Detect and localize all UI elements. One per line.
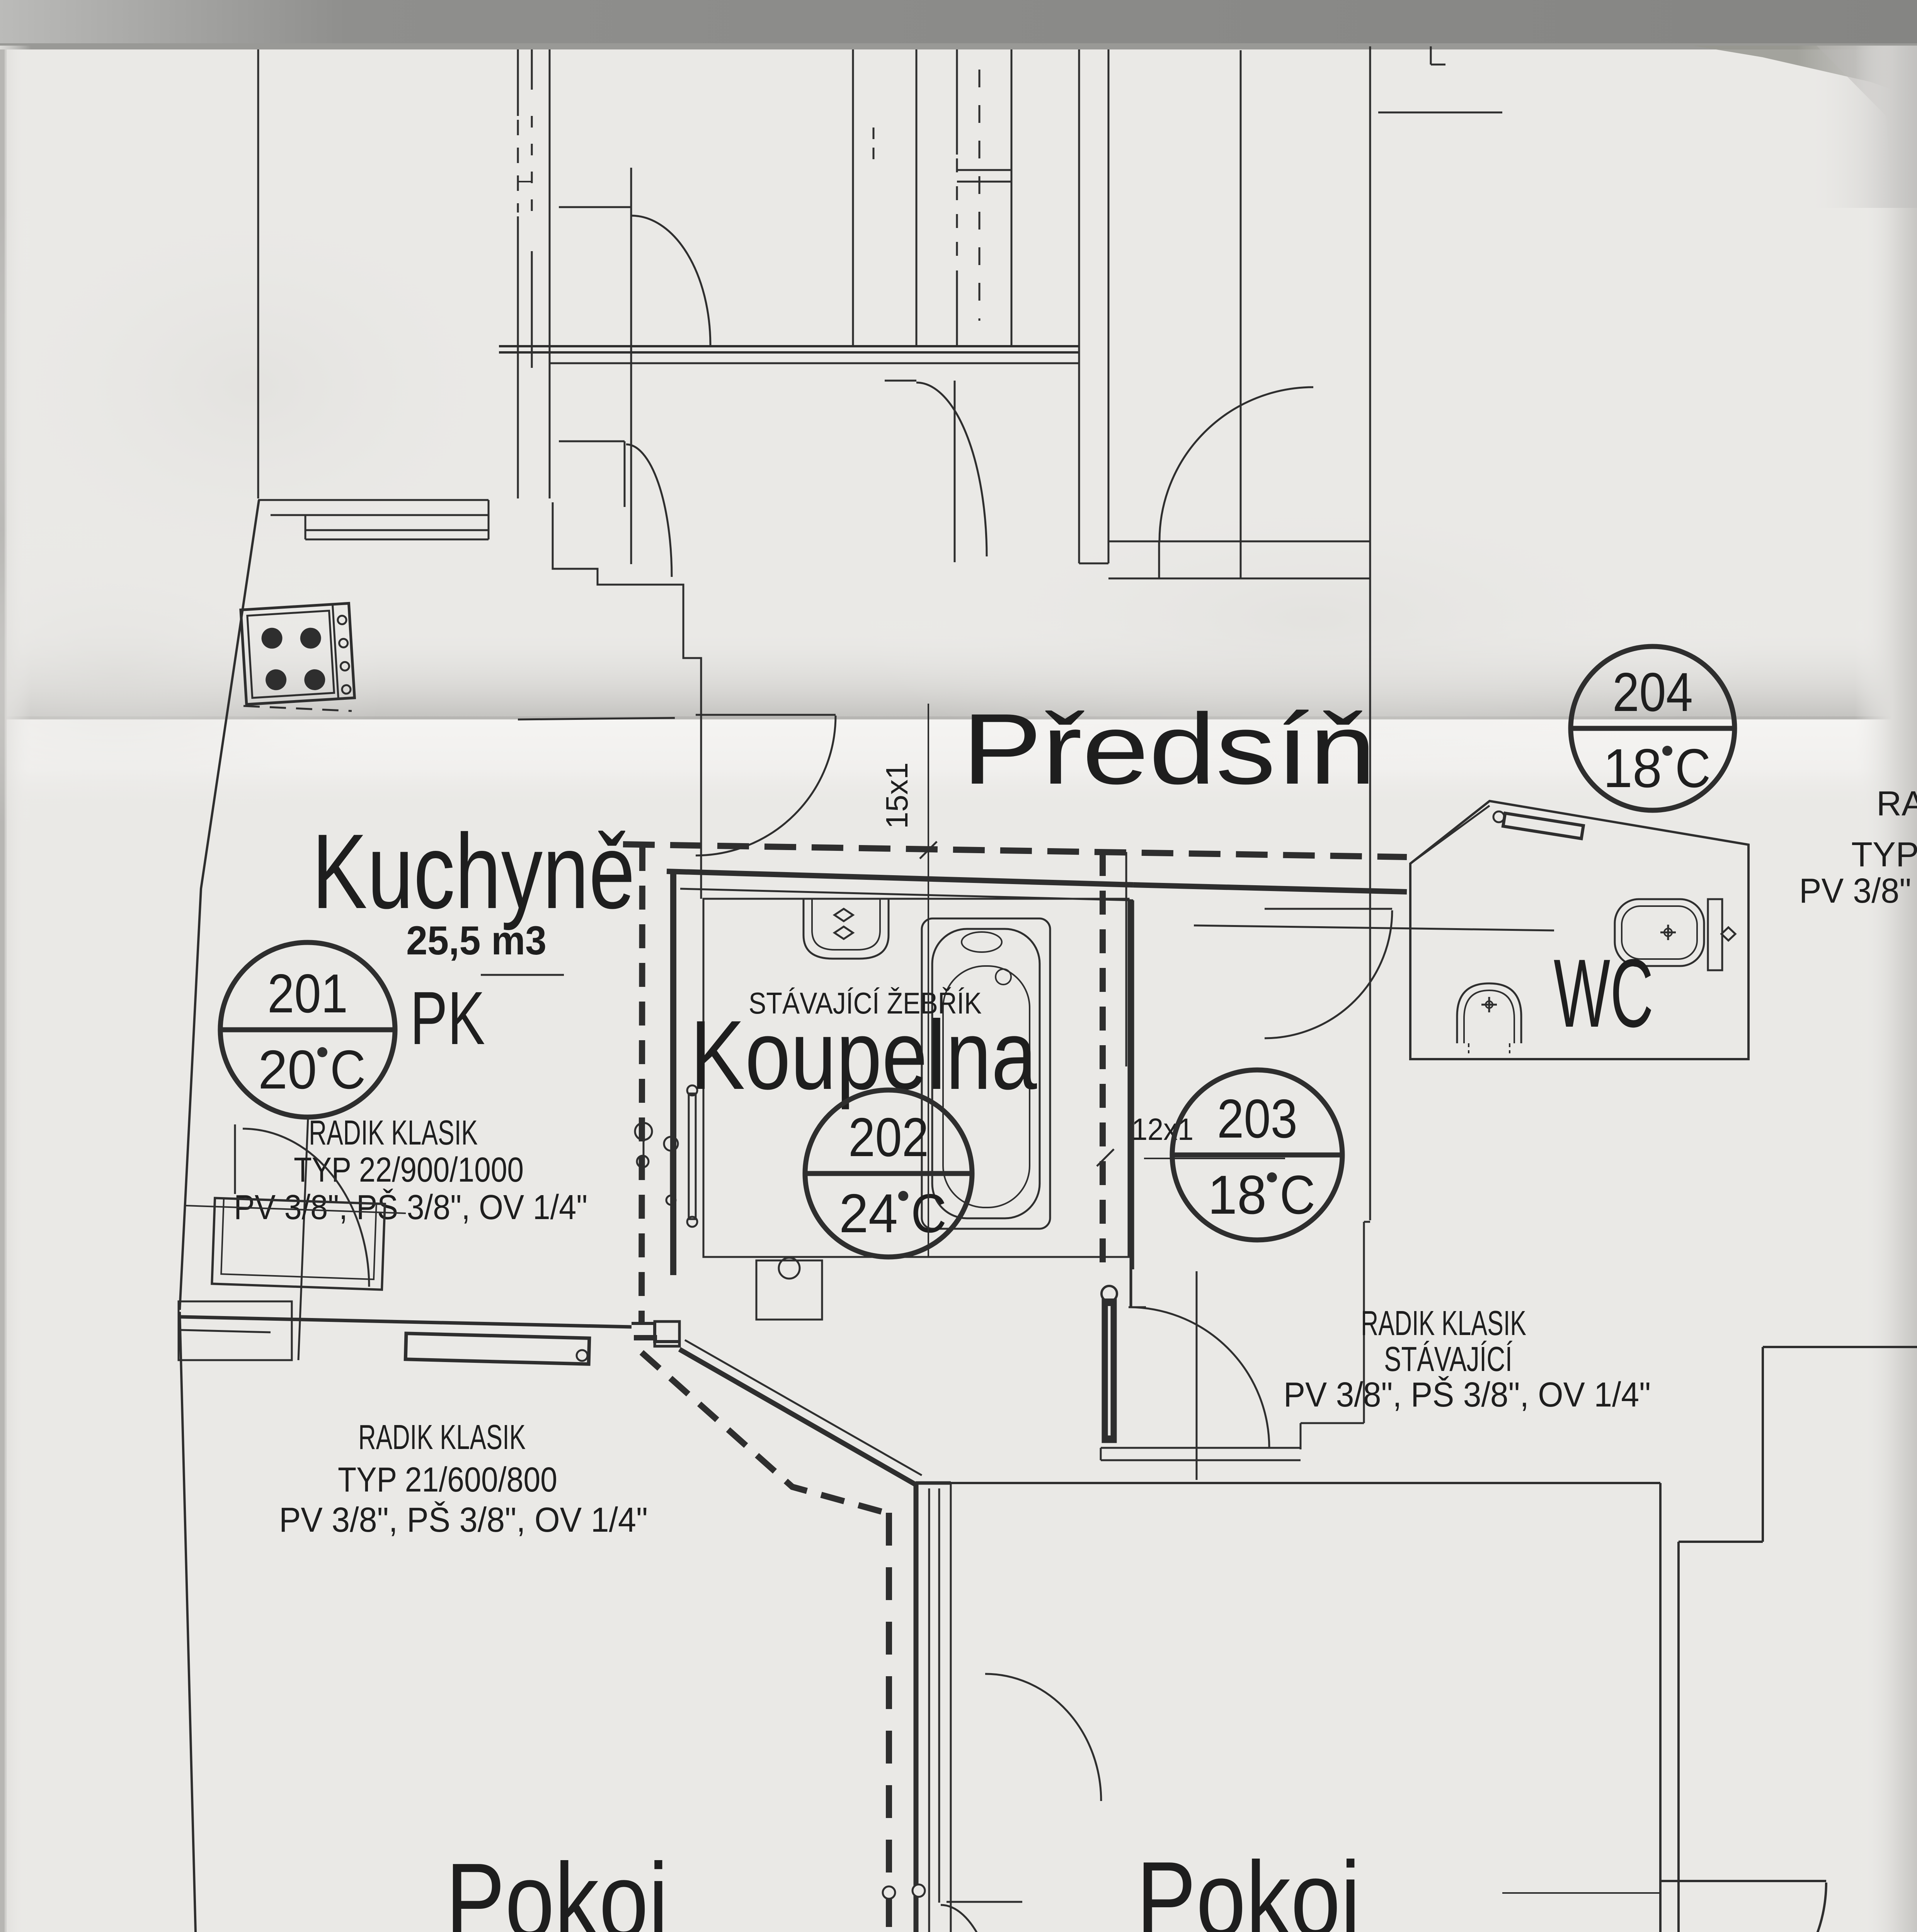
svg-text:WC: WC xyxy=(1554,939,1653,1048)
svg-text:RA: RA xyxy=(1876,784,1917,823)
svg-text:202: 202 xyxy=(848,1107,929,1168)
svg-text:TYP 21/600/800: TYP 21/600/800 xyxy=(338,1461,557,1499)
svg-text:C: C xyxy=(1675,738,1711,799)
svg-text:C: C xyxy=(1280,1164,1315,1226)
svg-text:20: 20 xyxy=(258,1039,317,1100)
svg-text:Kuchyně: Kuchyně xyxy=(312,812,635,931)
svg-text:PV 3/8", PŠ 3/8", OV 1/4": PV 3/8", PŠ 3/8", OV 1/4" xyxy=(234,1188,587,1227)
svg-text:Předsíň: Předsíň xyxy=(962,693,1376,805)
svg-text:24: 24 xyxy=(839,1183,898,1244)
svg-text:15x1: 15x1 xyxy=(880,762,914,829)
svg-text:PV 3/8", PŠ 3/8", OV 1/4": PV 3/8", PŠ 3/8", OV 1/4" xyxy=(279,1501,648,1539)
svg-text:PK: PK xyxy=(410,976,485,1060)
svg-text:203: 203 xyxy=(1217,1088,1297,1150)
svg-text:STÁVAJÍCÍ: STÁVAJÍCÍ xyxy=(1384,1340,1512,1379)
svg-text:PV 3/8": PV 3/8" xyxy=(1799,872,1911,910)
svg-text:204: 204 xyxy=(1612,662,1693,723)
svg-text:C: C xyxy=(330,1039,366,1100)
svg-text:TYP: TYP xyxy=(1851,835,1917,874)
svg-text:Pokoj: Pokoj xyxy=(446,1841,668,1932)
svg-text:RADIK KLASIK: RADIK KLASIK xyxy=(358,1418,526,1457)
svg-text:12x1: 12x1 xyxy=(1132,1112,1193,1146)
svg-text:Pokoj: Pokoj xyxy=(1136,1840,1360,1932)
svg-text:RADIK KLASIK: RADIK KLASIK xyxy=(309,1114,478,1152)
svg-text:18: 18 xyxy=(1208,1164,1267,1226)
svg-text:PV 3/8", PŠ 3/8", OV 1/4": PV 3/8", PŠ 3/8", OV 1/4" xyxy=(1284,1376,1651,1414)
svg-text:18: 18 xyxy=(1603,738,1662,799)
svg-text:RADIK KLASIK: RADIK KLASIK xyxy=(1361,1304,1526,1343)
svg-text:201: 201 xyxy=(267,963,348,1024)
svg-text:25,5 m3: 25,5 m3 xyxy=(406,918,546,963)
